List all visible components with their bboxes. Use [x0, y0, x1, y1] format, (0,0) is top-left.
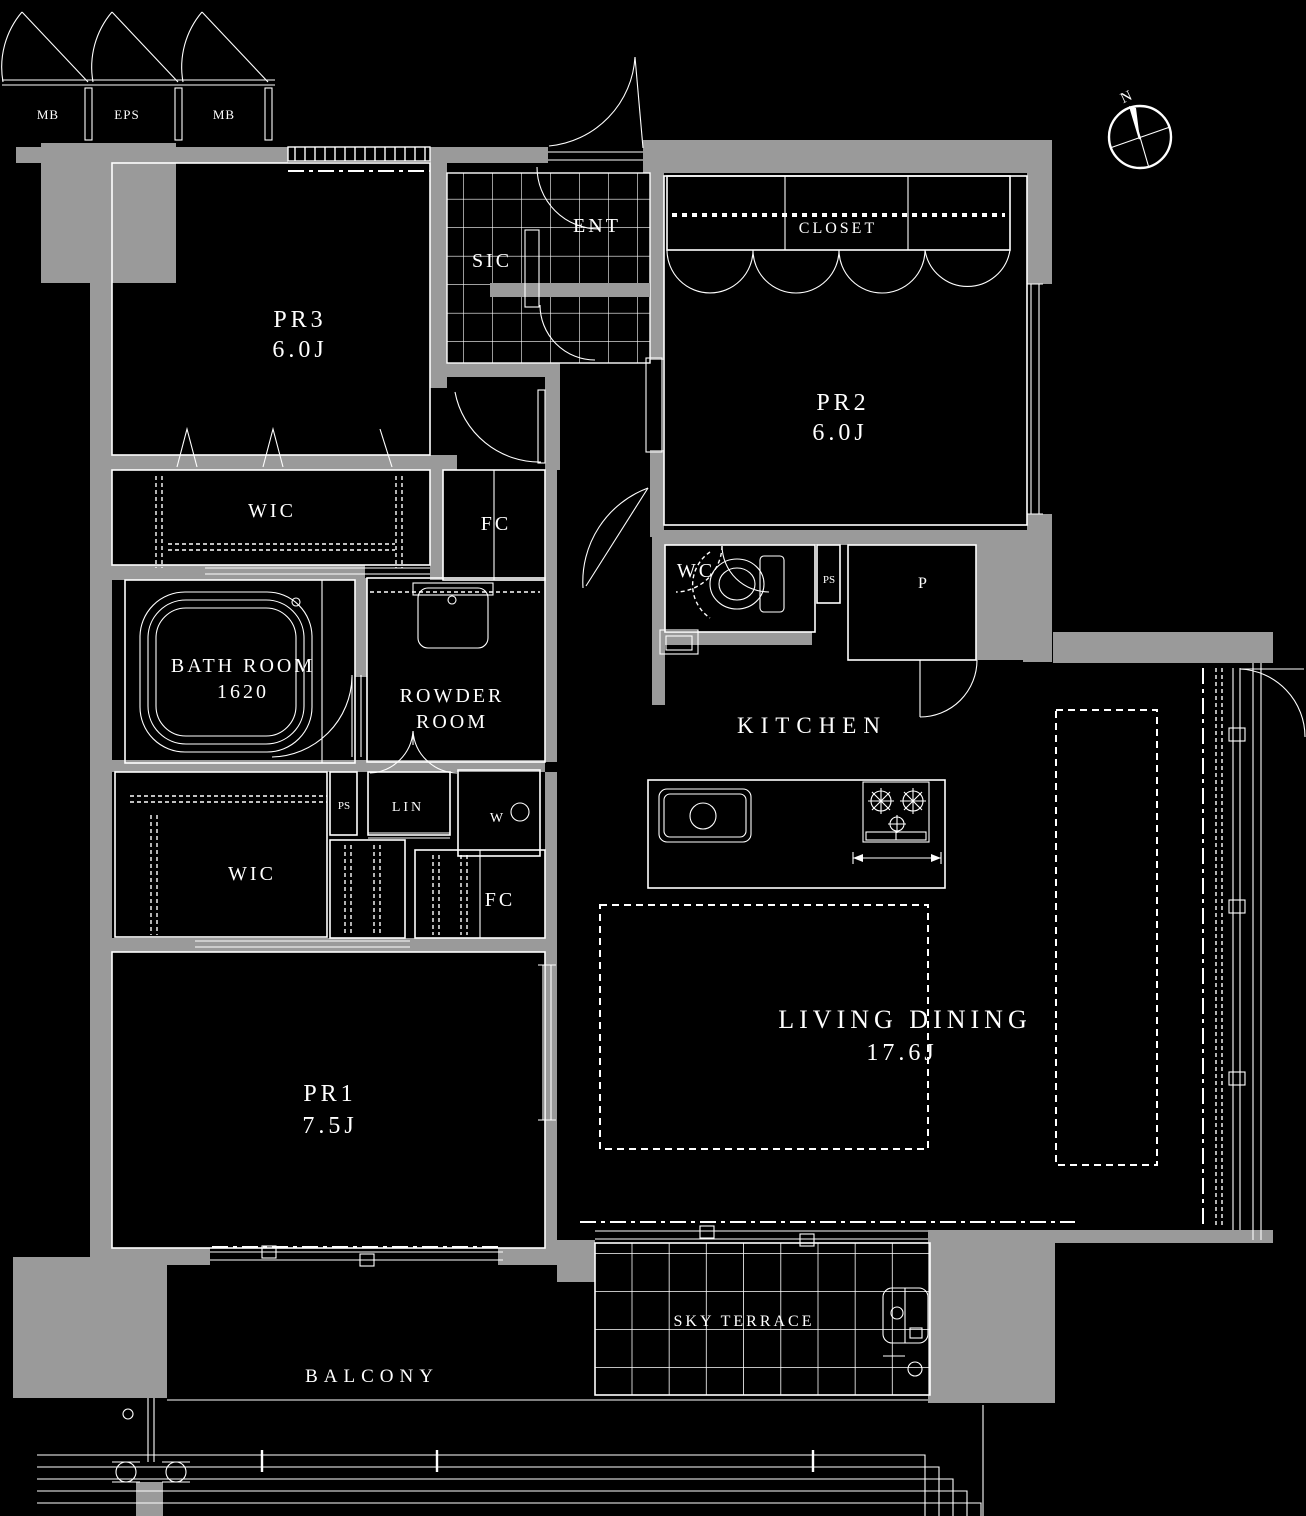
- label-kitchen: KITCHEN: [737, 713, 887, 738]
- label-living-name: LIVING DINING: [778, 1005, 1031, 1034]
- label-pantry: P: [918, 575, 930, 592]
- label-balcony: BALCONY: [305, 1366, 439, 1387]
- label-wic-upper: WIC: [248, 500, 296, 522]
- label-mb-left: MB: [37, 107, 59, 122]
- label-wc: WC: [677, 560, 715, 582]
- label-pr1-size: 7.5J: [302, 1113, 357, 1139]
- label-ps-right: PS: [823, 574, 835, 586]
- label-lin: LIN: [392, 800, 424, 815]
- label-pr1-name: PR1: [303, 1081, 356, 1107]
- label-sic: SIC: [472, 250, 512, 272]
- label-powder-line1: ROWDER: [400, 685, 505, 707]
- floor-plan-page: MB EPS MB ENT SIC CLOSET PR3 6.0J PR2 6.…: [0, 0, 1306, 1516]
- label-pr3-name: PR3: [273, 307, 326, 333]
- label-ent: ENT: [573, 215, 621, 237]
- label-eps: EPS: [114, 107, 139, 122]
- label-fc-lower: FC: [485, 889, 515, 911]
- label-living-size: 17.6J: [866, 1040, 937, 1066]
- label-washer: W: [490, 811, 506, 826]
- label-pr2-name: PR2: [816, 390, 869, 416]
- floor-plan-drawing: MB EPS MB ENT SIC CLOSET PR3 6.0J PR2 6.…: [0, 0, 1306, 1516]
- label-ps-left: PS: [338, 800, 350, 812]
- label-sky-terrace: SKY TERRACE: [673, 1313, 814, 1330]
- label-wic-lower: WIC: [228, 863, 276, 885]
- label-bath-name: BATH ROOM: [171, 655, 315, 677]
- label-bath-size: 1620: [217, 681, 269, 703]
- label-powder-line2: ROOM: [416, 711, 488, 733]
- label-pr2-size: 6.0J: [812, 420, 867, 446]
- label-mb-right: MB: [213, 107, 235, 122]
- label-fc-upper: FC: [481, 513, 511, 535]
- label-closet: CLOSET: [799, 220, 877, 237]
- label-pr3-size: 6.0J: [272, 337, 327, 363]
